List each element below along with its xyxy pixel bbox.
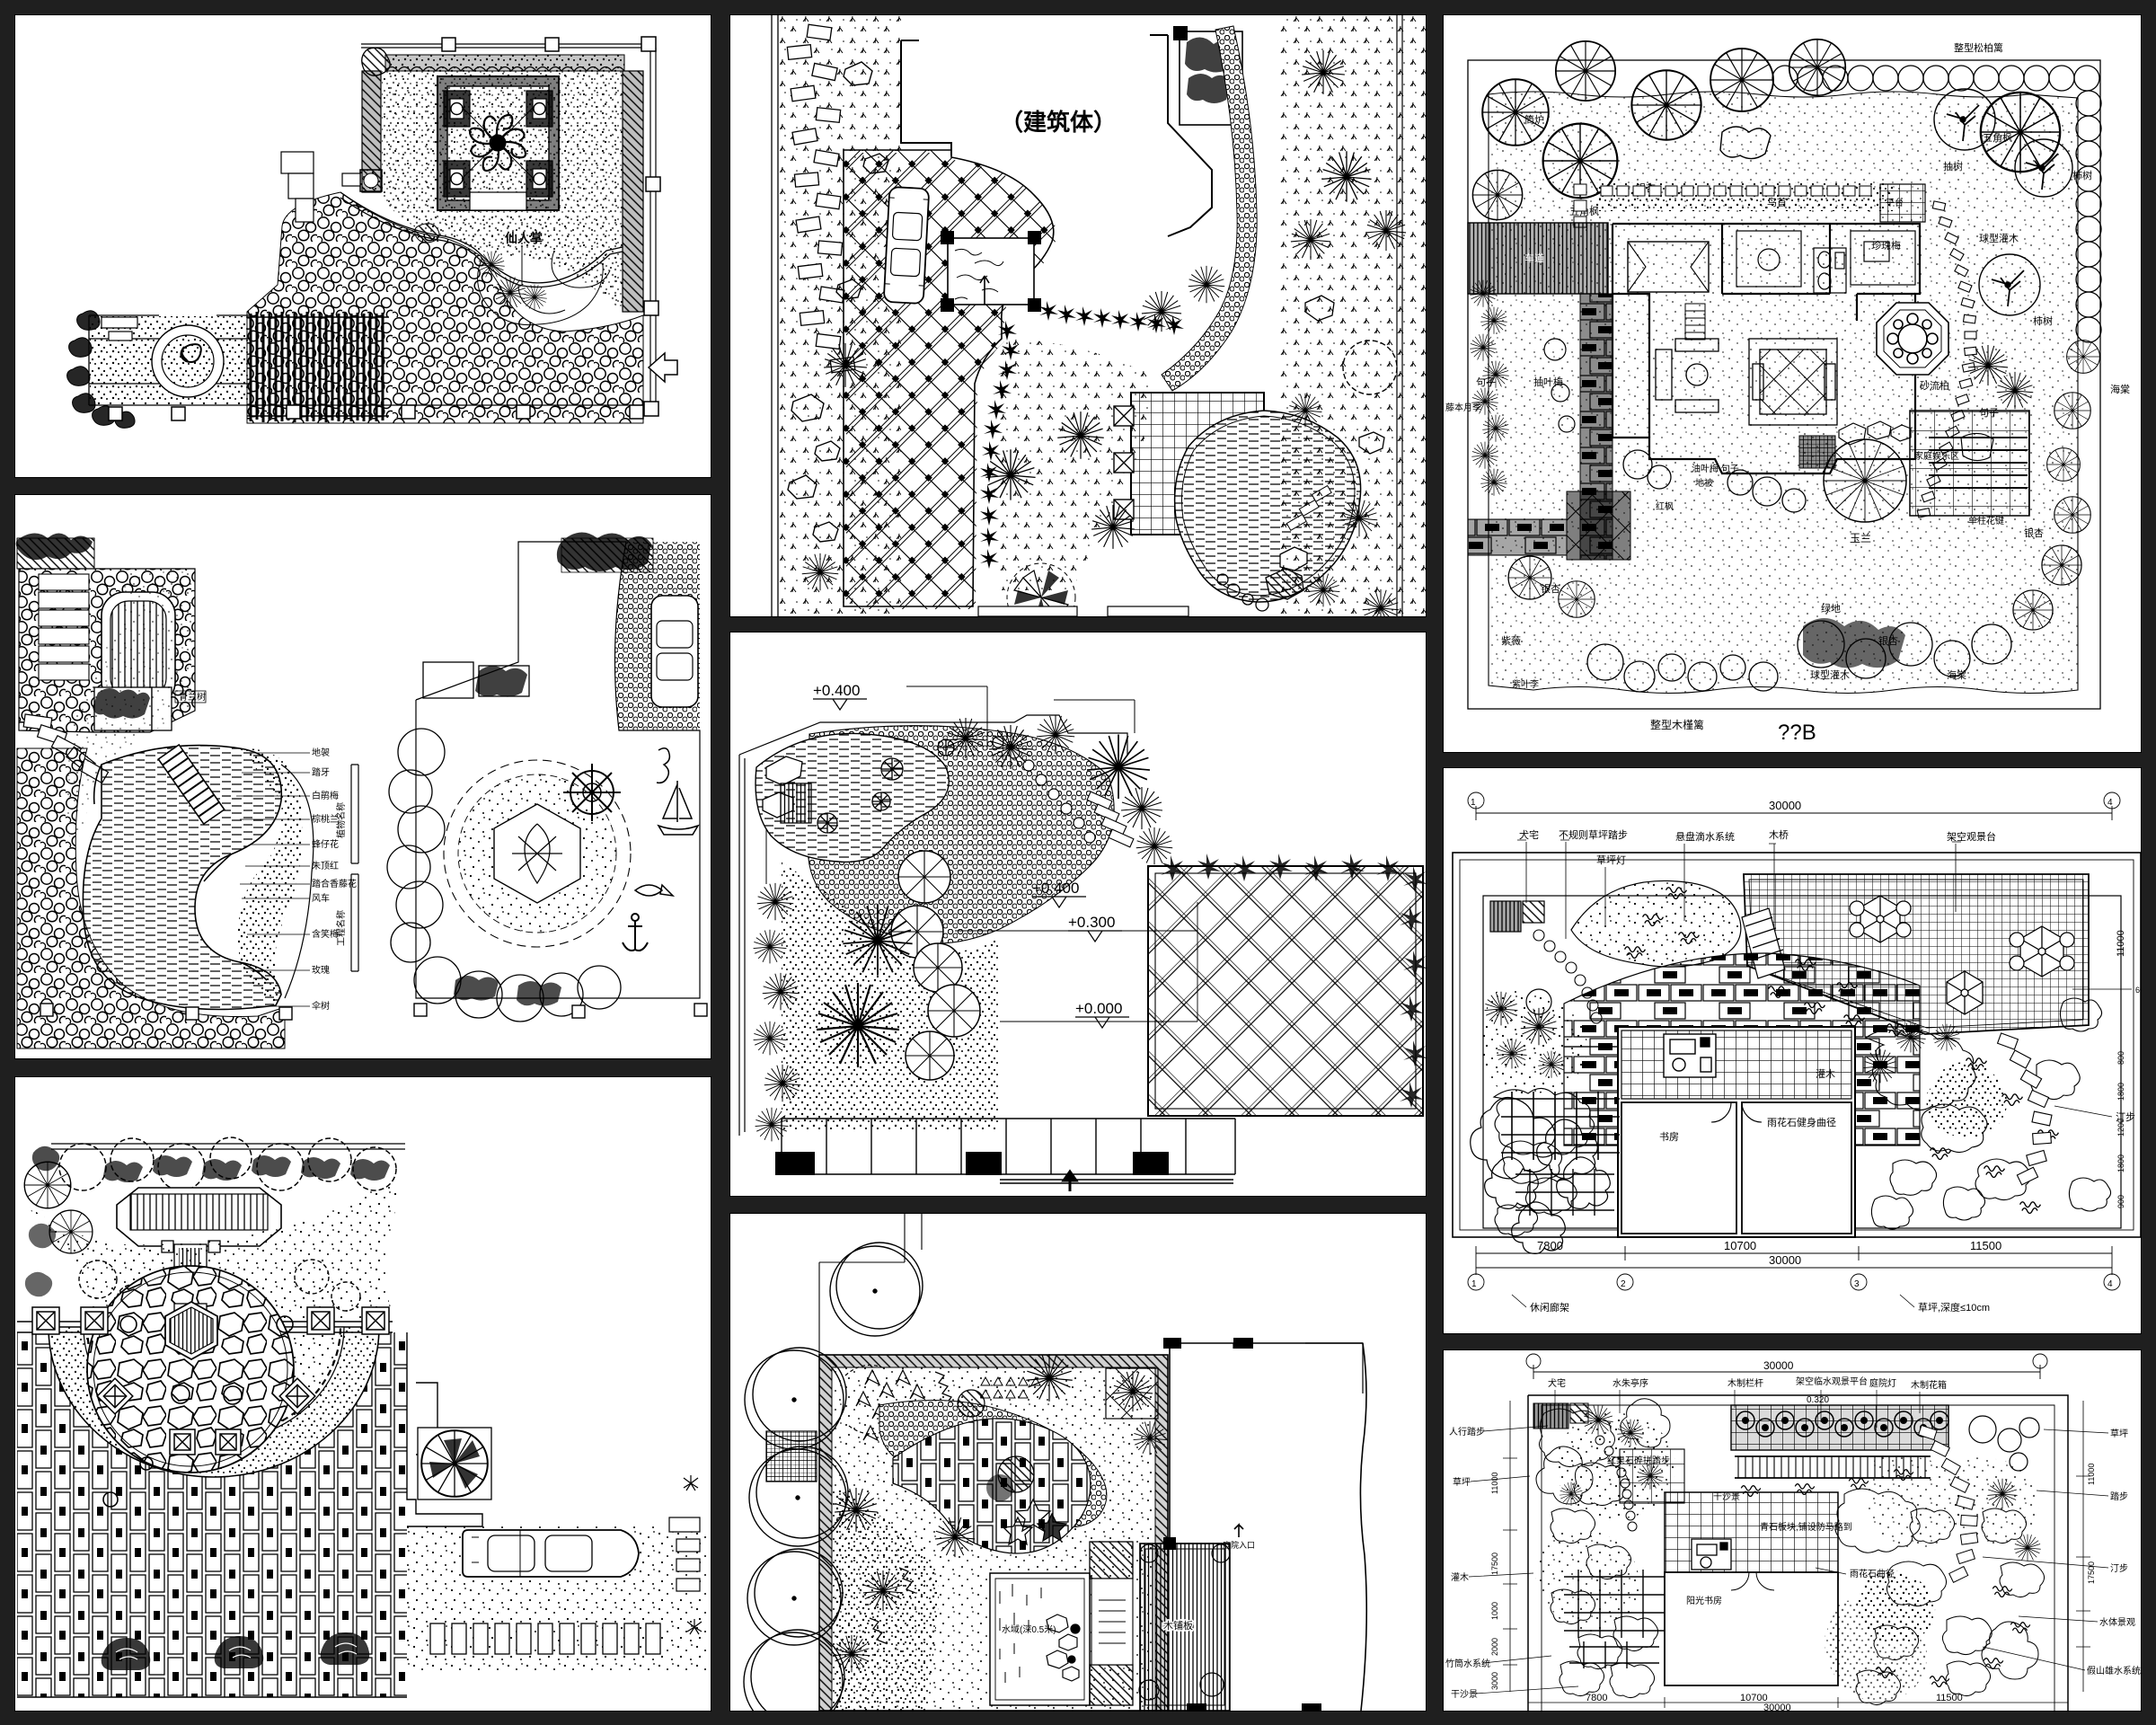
svg-text:句子: 句子: [1979, 407, 1999, 419]
svg-text:2: 2: [1621, 1279, 1626, 1289]
svg-text:人行踏步: 人行踏步: [1449, 1426, 1485, 1437]
svg-text:银杏: 银杏: [1541, 582, 1560, 595]
svg-text:水朱亭序: 水朱亭序: [1613, 1377, 1648, 1389]
svg-text:7800: 7800: [1537, 1239, 1563, 1252]
svg-text:汀步: 汀步: [2116, 1111, 2135, 1123]
svg-text:休闲廊架: 休闲廊架: [1530, 1301, 1569, 1314]
svg-text:30000: 30000: [1769, 1253, 1801, 1267]
svg-text:900: 900: [2116, 1195, 2125, 1208]
svg-text:风车: 风车: [312, 892, 330, 904]
svg-text:+0.400: +0.400: [1032, 880, 1079, 897]
svg-text:五角枫: 五角枫: [1983, 131, 2012, 144]
svg-text:绿地: 绿地: [1821, 602, 1841, 615]
svg-text:青石板块,铺设防马路到: 青石板块,铺设防马路到: [1760, 1521, 1852, 1533]
svg-text:木制花箱: 木制花箱: [1911, 1379, 1947, 1391]
svg-text:抽树: 抽树: [1943, 160, 1963, 172]
svg-text:草坪: 草坪: [2110, 1428, 2128, 1439]
svg-text:紫叶李: 紫叶李: [1512, 678, 1539, 690]
svg-text:30000: 30000: [1769, 799, 1801, 812]
svg-text:银杏: 银杏: [2024, 526, 2044, 539]
svg-text:汀步: 汀步: [2110, 1563, 2128, 1574]
svg-text:11000: 11000: [2116, 930, 2126, 957]
svg-text:干沙景: 干沙景: [1713, 1491, 1740, 1502]
svg-text:11500: 11500: [1936, 1693, 1963, 1703]
svg-text:3000: 3000: [1490, 1672, 1499, 1690]
svg-text:紫薇: 紫薇: [1501, 635, 1521, 647]
svg-text:玫瑰: 玫瑰: [312, 964, 330, 976]
svg-text:银杏: 银杏: [1878, 634, 1898, 647]
svg-text:单柱花键: 单柱花键: [1968, 515, 2004, 526]
svg-text:海棠: 海棠: [1947, 668, 1966, 681]
svg-text:踏步: 踏步: [2110, 1491, 2128, 1502]
svg-text:书房: 书房: [1659, 1131, 1679, 1143]
svg-text:地被: 地被: [1695, 477, 1713, 489]
svg-text:1000: 1000: [1490, 1602, 1499, 1620]
svg-text:藤本月季: 藤本月季: [1445, 402, 1481, 413]
svg-text:1800: 1800: [2116, 1083, 2125, 1101]
svg-text:犬宅: 犬宅: [1548, 1377, 1566, 1389]
svg-text:800: 800: [2116, 1051, 2125, 1065]
svg-text:架空观景台: 架空观景台: [1947, 830, 1996, 843]
svg-text:600×600: 600×600: [2135, 986, 2141, 995]
svg-text:庭院入口: 庭院入口: [1223, 1540, 1255, 1550]
svg-text:灌木: 灌木: [1451, 1572, 1469, 1583]
svg-text:4: 4: [2107, 1279, 2113, 1289]
svg-text:玉兰: 玉兰: [1850, 532, 1871, 544]
svg-text:砂流柏: 砂流柏: [1920, 379, 1949, 392]
svg-text:筒炉: 筒炉: [1524, 113, 1544, 126]
svg-text:10700: 10700: [1724, 1239, 1756, 1252]
svg-text:踏合香藤花: 踏合香藤花: [312, 878, 357, 889]
svg-text:0.320: 0.320: [1807, 1395, 1829, 1405]
svg-text:阳光书房: 阳光书房: [1686, 1595, 1722, 1606]
svg-text:悬盘滴水系统: 悬盘滴水系统: [1675, 830, 1735, 843]
svg-text:雨花石健身曲径: 雨花石健身曲径: [1767, 1116, 1836, 1128]
svg-text:竹筒水系统: 竹筒水系统: [1445, 1658, 1490, 1669]
svg-text:油叶梅 句子: 油叶梅 句子: [1692, 463, 1739, 474]
svg-text:珍珠梅: 珍珠梅: [1871, 239, 1901, 252]
svg-text:朱顶红: 朱顶红: [312, 860, 339, 871]
svg-text:1: 1: [1471, 798, 1476, 808]
svg-text:柿树: 柿树: [2072, 169, 2092, 181]
svg-text:蜂仔花: 蜂仔花: [312, 838, 339, 850]
svg-text:木制栏杆: 木制栏杆: [1727, 1377, 1763, 1389]
svg-text:架空临水观景平台: 架空临水观景平台: [1796, 1376, 1868, 1387]
svg-text:踏牙: 踏牙: [312, 766, 330, 778]
svg-text:水体景观: 水体景观: [2099, 1617, 2135, 1628]
svg-text:1800: 1800: [2116, 1154, 2125, 1172]
svg-text:红枫: 红枫: [1656, 500, 1674, 512]
svg-text:犬宅: 犬宅: [1519, 828, 1539, 841]
svg-text:木桥: 木桥: [1769, 829, 1789, 841]
svg-text:车道: 车道: [1524, 252, 1544, 264]
svg-text:1: 1: [1471, 1279, 1477, 1289]
svg-text:草坪: 草坪: [1453, 1476, 1471, 1488]
svg-text:句子: 句子: [1476, 376, 1496, 388]
svg-text:海棠: 海棠: [2110, 383, 2130, 395]
svg-text:草坪灯: 草坪灯: [1596, 854, 1626, 866]
svg-text:+0.300: +0.300: [1068, 914, 1115, 931]
svg-text:??B: ??B: [1778, 721, 1816, 745]
svg-text:仙人掌: 仙人掌: [505, 231, 543, 245]
svg-text:平台: 平台: [1886, 197, 1904, 208]
svg-text:球型灌木: 球型灌木: [1979, 232, 2019, 244]
svg-text:30000: 30000: [1763, 1703, 1791, 1711]
svg-text:整型木槿篱: 整型木槿篱: [1650, 718, 1704, 731]
svg-text:+0.400: +0.400: [813, 682, 860, 699]
svg-text:抽叶梅: 抽叶梅: [1533, 376, 1563, 388]
svg-text:庭院灯: 庭院灯: [1869, 1377, 1896, 1389]
svg-text:11500: 11500: [1970, 1239, 2001, 1252]
svg-text:干沙景: 干沙景: [1451, 1689, 1478, 1700]
svg-text:家庭娱乐区: 家庭娱乐区: [1914, 450, 1959, 462]
svg-text:（建筑体）: （建筑体）: [1000, 109, 1117, 136]
svg-text:7800: 7800: [1586, 1693, 1607, 1703]
svg-text:30000: 30000: [1763, 1359, 1794, 1372]
svg-text:柿树: 柿树: [2033, 314, 2053, 327]
svg-text:不规则草坪踏步: 不规则草坪踏步: [1559, 828, 1628, 841]
svg-text:植物名称: 植物名称: [335, 802, 347, 838]
svg-text:白鹃梅: 白鹃梅: [312, 790, 339, 801]
svg-text:4: 4: [2107, 798, 2113, 808]
svg-text:草坪,深度≤10cm: 草坪,深度≤10cm: [1918, 1301, 1990, 1314]
svg-text:灌木: 灌木: [1816, 1068, 1835, 1080]
svg-text:整型松柏篱: 整型松柏篱: [1954, 41, 2003, 54]
svg-text:3: 3: [1854, 1279, 1860, 1289]
svg-text:伞树: 伞树: [312, 1000, 330, 1012]
svg-text:球型灌木: 球型灌木: [1810, 668, 1850, 681]
svg-text:含笑梅: 含笑梅: [312, 928, 339, 940]
svg-text:假山雄水系统: 假山雄水系统: [2087, 1665, 2141, 1676]
svg-text:棕桃兰: 棕桃兰: [312, 813, 339, 825]
svg-text:11000: 11000: [1490, 1473, 1499, 1494]
svg-text:11000: 11000: [2087, 1464, 2096, 1485]
svg-text:+0.000: +0.000: [1075, 1000, 1122, 1017]
svg-text:地袈: 地袈: [312, 747, 330, 758]
svg-text:17500: 17500: [2087, 1561, 2096, 1584]
svg-text:鸟首: 鸟首: [1767, 196, 1787, 208]
svg-text:17500: 17500: [1490, 1552, 1499, 1575]
svg-text:工程名称: 工程名称: [335, 910, 347, 946]
svg-text:2000: 2000: [1490, 1638, 1499, 1656]
svg-text:木铺板: 木铺板: [1163, 1619, 1193, 1632]
